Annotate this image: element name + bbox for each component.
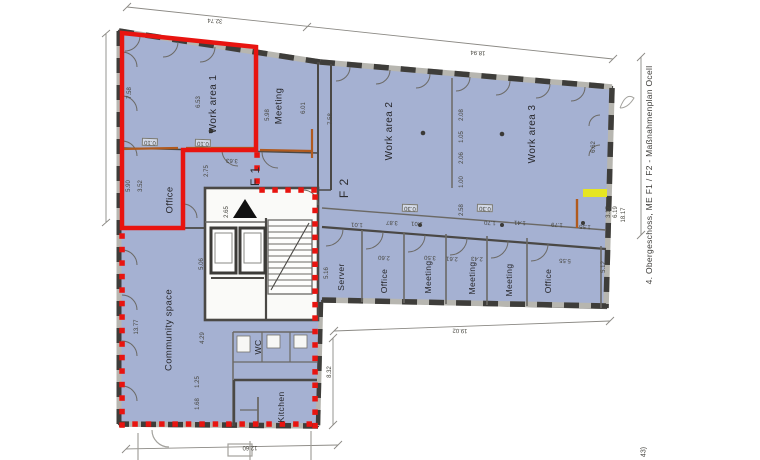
wc-fixture (267, 335, 280, 348)
ghost-lower-floor (138, 430, 311, 460)
red-dash-marker (119, 287, 125, 293)
red-dash-marker (293, 421, 299, 427)
red-dash-marker (312, 262, 318, 268)
red-dash-marker (119, 328, 125, 334)
red-dash-marker (132, 421, 138, 427)
red-dash-marker (226, 421, 232, 427)
red-dash-marker (119, 247, 125, 253)
red-dash-marker (186, 421, 192, 427)
red-dash-marker (312, 302, 318, 308)
red-dash-marker (312, 288, 318, 294)
wc-fixture (294, 335, 307, 348)
red-dash-marker (312, 423, 318, 429)
wc-fixture (237, 336, 250, 352)
red-dash-marker (312, 369, 318, 375)
red-dash-marker (259, 187, 265, 193)
red-dash-marker (119, 314, 125, 320)
red-dash-marker (280, 421, 286, 427)
red-dash-marker (119, 409, 125, 415)
red-dash-marker (146, 421, 152, 427)
red-dash-marker (312, 208, 318, 214)
red-dash-marker (159, 421, 165, 427)
red-dash-marker (239, 421, 245, 427)
red-dash-marker (172, 421, 178, 427)
red-dash-marker (312, 194, 318, 200)
stair-run (268, 220, 312, 294)
red-dash-marker (312, 235, 318, 241)
yellow-highlight (583, 189, 607, 197)
red-dash-marker (272, 187, 278, 193)
red-dash-marker (266, 421, 272, 427)
red-dash-marker (312, 383, 318, 389)
corner-note: 43) (641, 447, 648, 457)
red-dash-marker (119, 368, 125, 374)
red-dash-marker (119, 382, 125, 388)
red-dash-marker (254, 178, 259, 184)
red-dash-marker (119, 233, 125, 239)
red-dash-marker (199, 421, 205, 427)
core-elevators-stairs (205, 188, 318, 320)
red-dash-marker (119, 341, 125, 347)
red-dash-marker (312, 248, 318, 254)
red-dash-marker (307, 421, 313, 427)
red-dash-marker (254, 165, 259, 171)
red-dash-marker (312, 396, 318, 402)
red-dash-marker (253, 421, 259, 427)
red-dash-marker (119, 274, 125, 280)
red-dash-marker (312, 409, 318, 415)
red-dash-marker (119, 395, 125, 401)
floor-plan: Work area 1MeetingOfficeWork area 2Work … (0, 0, 760, 460)
red-dash-marker (311, 187, 317, 193)
red-dash-marker (312, 315, 318, 321)
red-dash-marker (213, 421, 219, 427)
red-dash-marker (119, 355, 125, 361)
red-dash-marker (312, 275, 318, 281)
red-dash-marker (119, 422, 125, 428)
red-dash-marker (312, 356, 318, 362)
side-note: 4. Obergeschoss, ME F1 / F2 - Maßnahmenp… (644, 66, 654, 285)
red-dash-marker (285, 187, 291, 193)
pencil-mark (620, 96, 634, 108)
red-dash-marker (254, 152, 259, 158)
red-dash-marker (312, 221, 318, 227)
red-dash-marker (119, 301, 125, 307)
red-dash-marker (119, 260, 125, 266)
red-dash-marker (312, 342, 318, 348)
red-dash-marker (298, 187, 304, 193)
red-dash-marker (312, 329, 318, 335)
